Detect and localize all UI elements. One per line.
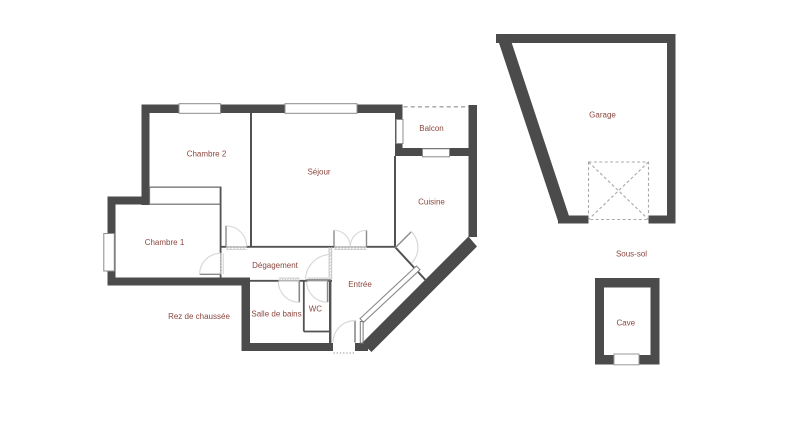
svg-text:Séjour: Séjour <box>307 167 330 176</box>
svg-text:WC: WC <box>309 304 323 313</box>
svg-text:Balcon: Balcon <box>419 124 443 133</box>
svg-text:Entrée: Entrée <box>348 280 372 289</box>
svg-text:Garage: Garage <box>589 111 616 120</box>
svg-text:Dégagement: Dégagement <box>252 261 299 270</box>
svg-text:Sous-sol: Sous-sol <box>616 250 647 259</box>
svg-text:Salle de bains: Salle de bains <box>251 310 301 319</box>
svg-text:Cave: Cave <box>616 319 635 328</box>
svg-text:Rez de chaussée: Rez de chaussée <box>168 312 230 321</box>
svg-text:Chambre 1: Chambre 1 <box>145 238 185 247</box>
svg-text:Cuisine: Cuisine <box>418 198 445 207</box>
svg-text:Chambre 2: Chambre 2 <box>187 150 227 159</box>
